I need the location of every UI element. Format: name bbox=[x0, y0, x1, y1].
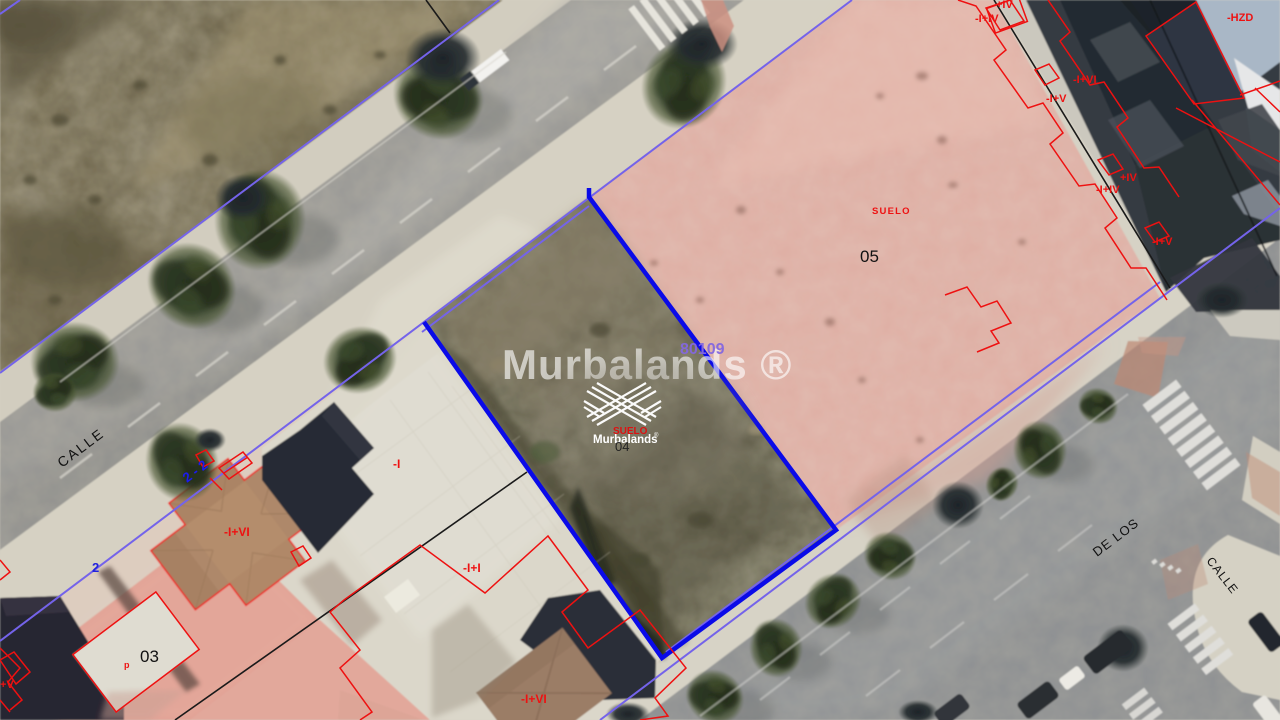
svg-text:-I+VI: -I+VI bbox=[1073, 74, 1097, 86]
svg-text:04: 04 bbox=[615, 439, 629, 454]
svg-text:80109: 80109 bbox=[680, 341, 725, 358]
svg-text:-I+IV: -I+IV bbox=[1096, 184, 1120, 196]
svg-text:-I+V: -I+V bbox=[1046, 93, 1067, 105]
svg-text:+V: +V bbox=[0, 679, 14, 691]
svg-text:-I+I: -I+I bbox=[463, 561, 481, 575]
svg-text:SUELO: SUELO bbox=[872, 206, 911, 217]
svg-text:-I+VI: -I+VI bbox=[521, 692, 547, 706]
svg-text:05: 05 bbox=[860, 247, 879, 266]
svg-text:-I+IV: -I+IV bbox=[975, 13, 999, 25]
svg-text:p: p bbox=[124, 660, 130, 670]
svg-text:2: 2 bbox=[92, 560, 99, 575]
svg-text:-I+V: -I+V bbox=[1152, 236, 1173, 248]
svg-text:+IV: +IV bbox=[996, 0, 1013, 11]
svg-text:®: ® bbox=[654, 432, 659, 439]
svg-text:-HZD: -HZD bbox=[1227, 12, 1253, 24]
svg-text:+IV: +IV bbox=[1120, 172, 1137, 184]
svg-text:03: 03 bbox=[140, 647, 159, 666]
svg-text:-I: -I bbox=[393, 457, 400, 471]
svg-text:-I+VI: -I+VI bbox=[224, 525, 250, 539]
